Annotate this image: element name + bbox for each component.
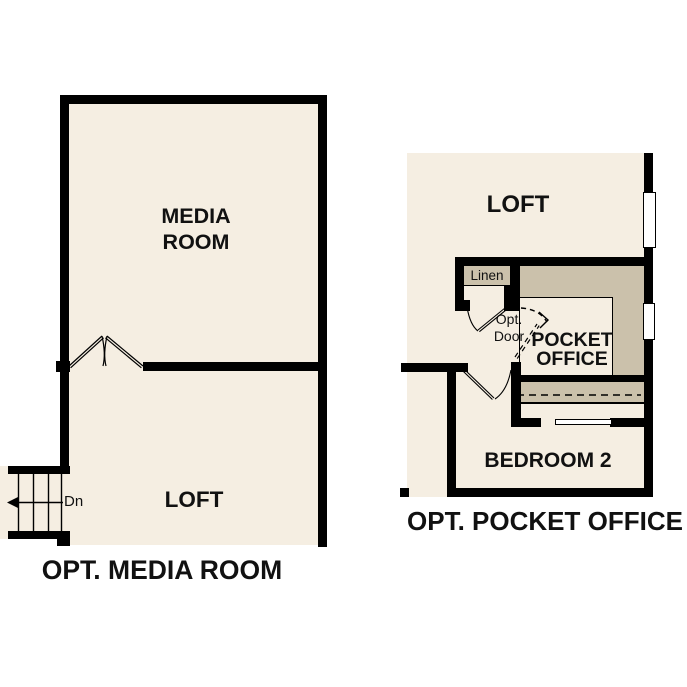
window-icon-lower — [643, 303, 655, 340]
wall-loft-divider — [455, 257, 653, 266]
floor-plan-canvas: MEDIA ROOM LOFT Dn OPT. MEDIA ROOM — [0, 0, 687, 687]
window-icon-upper — [643, 192, 656, 248]
pocket-door-icon — [555, 419, 612, 425]
linen-office-divider-foot — [504, 285, 520, 311]
bottom-wall-stub — [400, 488, 409, 497]
bedroom-wall-bottom — [447, 488, 653, 497]
bedroom-label: BEDROOM 2 — [448, 449, 648, 473]
desk-shaded-strip — [513, 382, 644, 402]
desk-bottom-line — [511, 402, 653, 404]
pocket-office-label: POCKET OFFICE — [512, 331, 632, 369]
loft-label-right: LOFT — [468, 191, 568, 219]
hall-wall-left — [401, 363, 468, 372]
linen-wall-left-foot — [455, 300, 470, 311]
linen-label: Linen — [463, 268, 511, 284]
office-bottom-wall — [511, 375, 653, 382]
bedroom-wall-top-right-seg — [610, 418, 653, 427]
bedroom-wall-top-left-seg — [511, 418, 541, 427]
bedroom-wall-left — [447, 363, 456, 497]
pocket-office-plan: LOFT Linen Opt. Door POCKET OFFICE BEDRO… — [0, 0, 687, 687]
pocket-office-caption: OPT. POCKET OFFICE — [405, 506, 685, 537]
